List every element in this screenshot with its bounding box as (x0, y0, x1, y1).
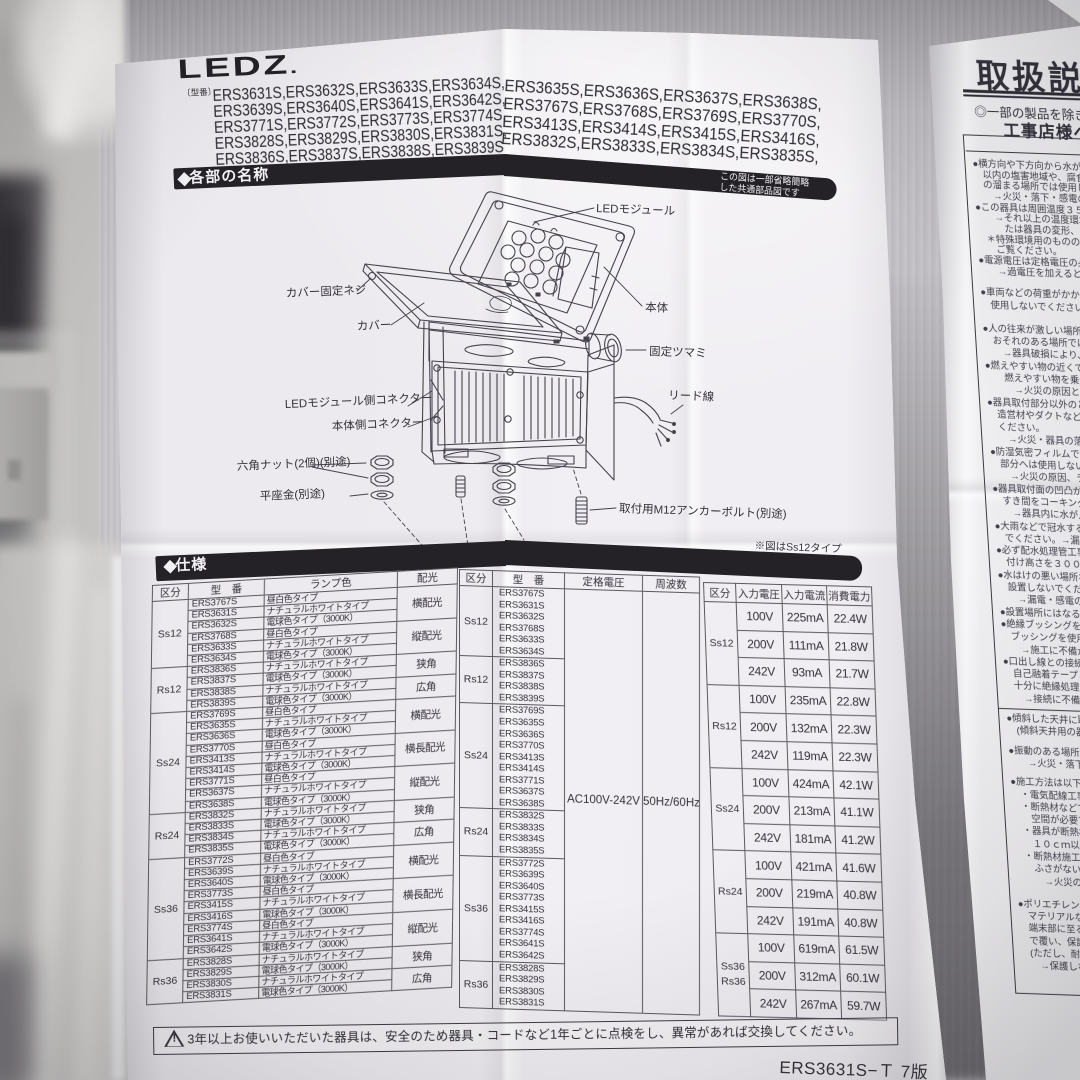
svg-text:本体: 本体 (645, 300, 669, 315)
svg-text:平座金(別途): 平座金(別途) (260, 486, 326, 503)
svg-text:本体側コネクター: 本体側コネクター (332, 415, 424, 433)
svg-text:リード線: リード線 (668, 388, 715, 404)
svg-text:LEDモジュール: LEDモジュール (596, 203, 675, 218)
svg-text:取付用M12アンカーボルト(別途): 取付用M12アンカーボルト(別途) (619, 501, 787, 521)
svg-text:カバー: カバー (357, 319, 392, 333)
svg-text:六角ナット(2個)(別途): 六角ナット(2個)(別途) (237, 454, 351, 473)
svg-text:カバー固定ネジ: カバー固定ネジ (286, 282, 367, 299)
svg-text:固定ツマミ: 固定ツマミ (649, 344, 707, 360)
svg-text:LEDモジュール側コネクター: LEDモジュール側コネクター (285, 392, 433, 411)
